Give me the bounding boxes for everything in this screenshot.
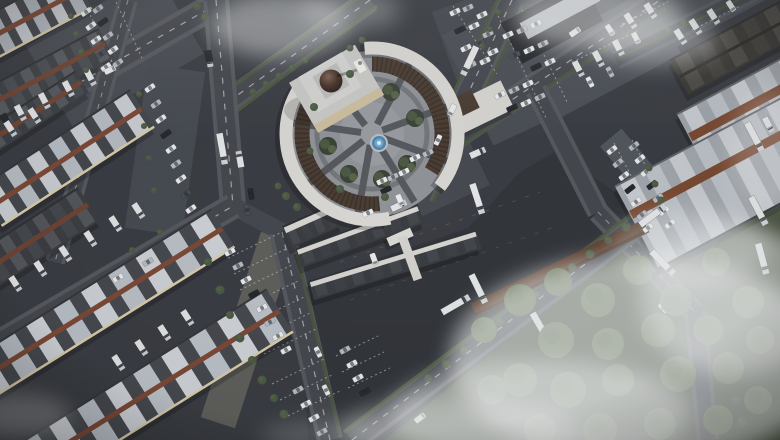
aerial-render	[0, 0, 780, 440]
scene-svg	[0, 0, 780, 440]
vignette	[0, 0, 780, 440]
scene-root	[0, 0, 780, 440]
